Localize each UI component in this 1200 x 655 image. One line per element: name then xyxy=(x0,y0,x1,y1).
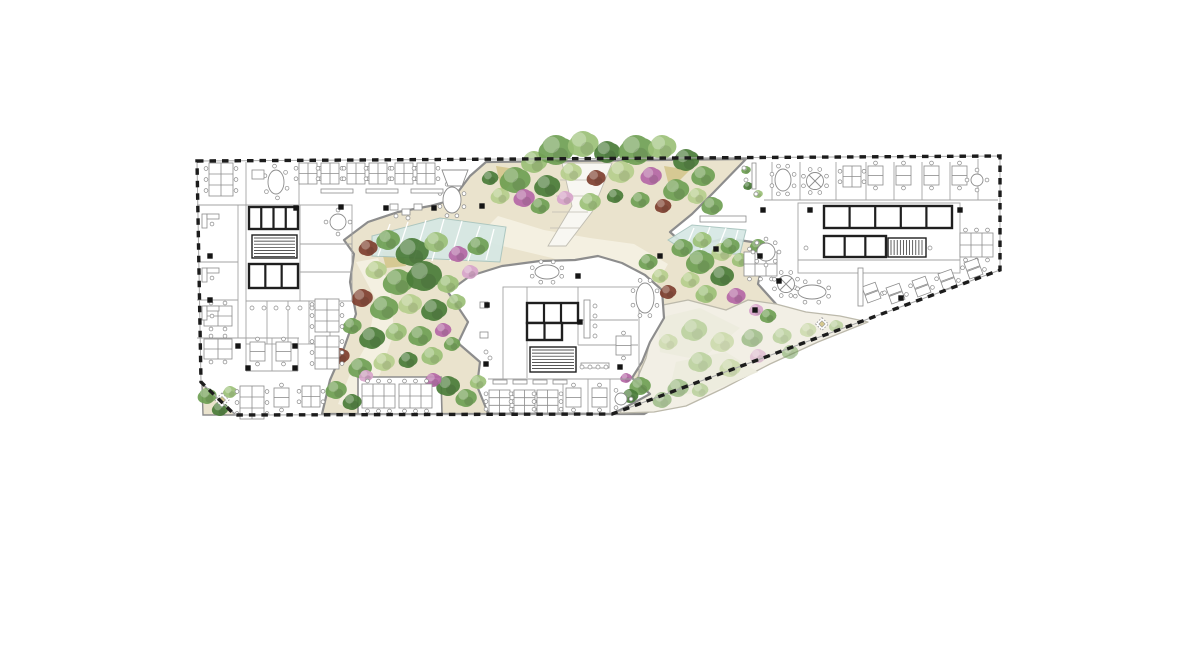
chair xyxy=(779,294,783,298)
chair xyxy=(751,250,755,254)
chair xyxy=(316,177,320,181)
chair xyxy=(985,178,989,182)
tree-shade xyxy=(698,260,710,272)
fixture-stool xyxy=(742,166,746,170)
tree-shade xyxy=(386,239,396,249)
chair xyxy=(551,260,555,264)
chair xyxy=(285,186,289,190)
chair xyxy=(777,250,781,254)
chair xyxy=(808,191,812,195)
tree xyxy=(568,131,599,157)
chair xyxy=(532,407,536,411)
chair xyxy=(509,400,513,404)
tree-shade xyxy=(569,171,578,180)
tree-shade xyxy=(334,389,343,398)
chair xyxy=(748,277,752,281)
chair xyxy=(234,178,238,182)
chair xyxy=(204,178,208,182)
chair xyxy=(975,188,979,192)
chair xyxy=(342,166,346,170)
stair-outline xyxy=(888,238,926,257)
fixture-stool xyxy=(298,306,302,310)
chair xyxy=(773,277,777,281)
structural-column xyxy=(657,253,662,258)
chair xyxy=(204,167,208,171)
desk-pair xyxy=(952,161,967,190)
chair xyxy=(282,362,286,366)
tree-shade xyxy=(698,361,708,371)
tree-shade xyxy=(720,275,730,285)
chair xyxy=(572,408,576,412)
chair xyxy=(377,409,381,413)
structural-column xyxy=(293,205,298,210)
structural-column xyxy=(577,319,582,324)
table-top xyxy=(443,187,461,213)
credenza xyxy=(493,380,507,384)
chair xyxy=(908,283,913,288)
desk-pair xyxy=(276,337,291,366)
tree-shade xyxy=(366,247,374,255)
structural-column xyxy=(235,343,240,348)
tree-shade xyxy=(666,341,674,349)
chair xyxy=(265,390,269,394)
structural-column xyxy=(760,207,765,212)
chair xyxy=(445,214,449,218)
chair xyxy=(874,186,878,190)
tree-shade xyxy=(394,331,403,340)
chair xyxy=(631,289,635,293)
structural-column xyxy=(807,207,812,212)
credenza xyxy=(533,380,547,384)
credenza xyxy=(513,380,527,384)
chair xyxy=(484,400,488,404)
tree-shade xyxy=(789,351,796,358)
desk-pair-angled xyxy=(933,268,961,292)
fixture-stool xyxy=(406,216,410,220)
fixture-stool xyxy=(394,214,398,218)
core-cell-block xyxy=(249,264,298,288)
tree-shade xyxy=(408,303,418,313)
desk-cluster-6 xyxy=(960,228,993,262)
core-cell-block xyxy=(824,236,886,257)
fixture-stool xyxy=(286,306,290,310)
chair xyxy=(786,164,790,168)
chair xyxy=(462,192,466,196)
structural-column xyxy=(207,297,212,302)
chair xyxy=(598,408,602,412)
chair xyxy=(986,258,990,262)
chair xyxy=(560,274,564,278)
chair xyxy=(964,228,968,232)
chair xyxy=(629,397,633,401)
structural-column xyxy=(245,365,250,370)
chair xyxy=(827,294,831,298)
chair xyxy=(559,392,563,396)
stair-outline xyxy=(252,235,297,258)
core-cell-block xyxy=(824,206,952,228)
structural-column xyxy=(575,273,580,278)
desk-cluster-4 xyxy=(297,386,325,407)
chair xyxy=(773,259,777,263)
fixture-stool xyxy=(588,365,592,369)
tree-shade xyxy=(350,325,358,333)
chair xyxy=(310,325,314,329)
tree-shade xyxy=(432,379,439,386)
chair xyxy=(210,222,214,226)
desk-pair xyxy=(868,161,883,190)
chair xyxy=(655,289,659,293)
chair xyxy=(336,232,340,236)
chair xyxy=(862,180,866,184)
tree-shade xyxy=(229,391,235,397)
desk-cluster-6 xyxy=(532,390,563,413)
tree-shade xyxy=(532,160,543,171)
tree-shade xyxy=(205,395,213,403)
table-top xyxy=(268,170,284,194)
structural-column xyxy=(383,205,388,210)
tree-shade xyxy=(538,205,546,213)
table-top xyxy=(535,265,559,279)
chair xyxy=(789,271,793,275)
tree-shade xyxy=(614,195,621,202)
tree-shade xyxy=(695,195,703,203)
desk-cluster-4 xyxy=(204,334,232,364)
structural-column xyxy=(292,365,297,370)
chair xyxy=(755,259,759,263)
chair xyxy=(655,303,659,307)
meeting-table-oval xyxy=(770,164,796,196)
tree-shade xyxy=(545,184,556,195)
tree-shade xyxy=(662,205,669,212)
chair xyxy=(390,166,394,170)
meeting-table-oval xyxy=(263,164,289,200)
tree-shade xyxy=(350,401,358,409)
fixture-stool xyxy=(604,365,608,369)
chair xyxy=(388,379,392,383)
fixture-stool xyxy=(593,314,597,318)
chair xyxy=(364,166,368,170)
chair xyxy=(223,360,227,364)
tree-shade xyxy=(660,145,672,157)
chair xyxy=(638,314,642,318)
tree-shade xyxy=(594,177,602,185)
chair xyxy=(755,241,759,245)
chair xyxy=(321,400,325,404)
meeting-table-round xyxy=(324,208,352,236)
chair xyxy=(648,314,652,318)
chair xyxy=(388,409,392,413)
tree-shade xyxy=(700,239,708,247)
desk-pair xyxy=(274,383,289,412)
tree xyxy=(648,135,676,159)
chair xyxy=(462,205,466,209)
desk-block xyxy=(202,214,207,228)
chair xyxy=(310,351,314,355)
chair xyxy=(340,314,344,318)
tree-shade xyxy=(451,343,458,350)
fixture-stool xyxy=(596,365,600,369)
desk-block xyxy=(202,306,207,320)
chair xyxy=(280,383,284,387)
fixture-stool xyxy=(754,192,758,196)
desk-cluster-6 xyxy=(399,379,432,413)
chair xyxy=(789,294,793,298)
structural-column xyxy=(957,207,962,212)
chair xyxy=(776,192,780,196)
chair xyxy=(748,247,752,251)
table-top xyxy=(330,214,346,230)
tree-shade xyxy=(625,377,630,382)
chair xyxy=(956,278,961,283)
chair xyxy=(436,166,440,170)
chair xyxy=(975,168,979,172)
tree-shade xyxy=(446,385,456,395)
chair xyxy=(614,388,618,392)
desk-cluster-6 xyxy=(310,299,344,332)
chair xyxy=(425,379,429,383)
credenza xyxy=(584,300,590,338)
chair xyxy=(934,276,939,281)
tree-shade xyxy=(406,359,414,367)
chair xyxy=(818,191,822,195)
chair xyxy=(455,214,459,218)
chair xyxy=(786,192,790,196)
chair xyxy=(276,196,280,200)
chair xyxy=(817,280,821,284)
chair xyxy=(414,379,418,383)
chair xyxy=(779,271,783,275)
chair xyxy=(284,170,288,174)
credenza xyxy=(553,380,567,384)
chair xyxy=(412,177,416,181)
desk-cluster-6 xyxy=(310,336,344,369)
fixture-stool xyxy=(744,178,748,182)
desk-block xyxy=(207,214,219,219)
chair xyxy=(412,166,416,170)
chair xyxy=(273,164,277,168)
chair xyxy=(622,331,626,335)
chair xyxy=(818,168,822,172)
tree-shade xyxy=(553,148,568,163)
chair xyxy=(377,379,381,383)
tree-shade xyxy=(747,185,751,189)
floor-plan-drawing xyxy=(0,0,1200,655)
chair xyxy=(817,300,821,304)
chair xyxy=(530,274,534,278)
chair xyxy=(321,389,325,393)
chair xyxy=(340,325,344,329)
fixture-stool xyxy=(928,246,932,250)
chair xyxy=(904,292,909,297)
chair xyxy=(838,169,842,173)
credenza xyxy=(752,163,756,189)
tree-shade xyxy=(522,197,531,206)
fixture-stool xyxy=(274,306,278,310)
fixture-stool xyxy=(593,334,597,338)
fixture-stool xyxy=(262,306,266,310)
chair xyxy=(256,337,260,341)
side-table xyxy=(390,204,398,210)
structural-column xyxy=(898,295,903,300)
fixture-stool xyxy=(593,324,597,328)
desk-pair-angled xyxy=(881,282,909,306)
tree-shade xyxy=(382,361,391,370)
chair xyxy=(560,266,564,270)
chair xyxy=(366,379,370,383)
chair xyxy=(484,392,488,396)
desk-cluster-6 xyxy=(362,379,395,413)
chair xyxy=(559,407,563,411)
chair xyxy=(874,161,878,165)
tree-shade xyxy=(638,385,647,394)
tree-shade xyxy=(430,355,439,364)
chair xyxy=(803,300,807,304)
fixture-stool xyxy=(250,306,254,310)
core-cell-block xyxy=(527,303,578,323)
tree-shade xyxy=(720,341,730,351)
tree-shade xyxy=(469,271,476,278)
chair xyxy=(366,409,370,413)
chair xyxy=(256,362,260,366)
table-top xyxy=(636,283,654,313)
side-table xyxy=(414,204,422,210)
tree-shade xyxy=(580,142,593,155)
chair xyxy=(282,337,286,341)
tree-shade xyxy=(734,295,742,303)
table-top xyxy=(775,169,791,191)
tree-shade xyxy=(370,336,381,347)
office-desk-l xyxy=(202,268,219,282)
chair xyxy=(598,383,602,387)
chair xyxy=(559,400,563,404)
tree-shade xyxy=(633,148,648,163)
chair xyxy=(862,169,866,173)
chair xyxy=(793,294,797,298)
structural-column xyxy=(338,204,343,209)
chair xyxy=(964,258,968,262)
tree-shade xyxy=(489,177,496,184)
chair xyxy=(803,280,807,284)
fixture-stool xyxy=(484,350,488,354)
tree-shade xyxy=(646,261,654,269)
desk-cluster-4 xyxy=(204,301,232,331)
chair xyxy=(209,334,213,338)
chair xyxy=(297,389,301,393)
chair xyxy=(204,189,208,193)
chair xyxy=(403,409,407,413)
chair xyxy=(960,265,965,270)
chair xyxy=(773,287,777,291)
fixture-stool xyxy=(310,306,314,310)
chair xyxy=(802,184,806,188)
tree-shade xyxy=(780,335,788,343)
meeting-table-cross xyxy=(802,168,829,195)
tree-shade xyxy=(688,279,696,287)
tree-shade xyxy=(767,315,774,322)
chair xyxy=(539,260,543,264)
chair xyxy=(827,286,831,290)
desk-cluster-4 xyxy=(838,166,866,187)
chair xyxy=(297,400,301,404)
desk-pair xyxy=(250,337,265,366)
chair xyxy=(310,340,314,344)
meeting-table-oval xyxy=(793,280,830,304)
chair xyxy=(209,360,213,364)
chair xyxy=(310,362,314,366)
structural-column xyxy=(617,364,622,369)
chair xyxy=(802,174,806,178)
tree-shade xyxy=(704,293,713,302)
chair xyxy=(348,220,352,224)
tree-shade xyxy=(728,245,736,253)
chair xyxy=(340,351,344,355)
tree-shade xyxy=(395,280,408,293)
chair xyxy=(210,276,214,280)
chair xyxy=(551,280,555,284)
chair xyxy=(425,409,429,413)
chair xyxy=(770,172,774,176)
tree-shade xyxy=(421,274,436,289)
tree xyxy=(743,182,752,190)
chair xyxy=(342,177,346,181)
tree-shade xyxy=(619,170,630,181)
tree-shade xyxy=(219,408,226,415)
chair xyxy=(773,241,777,245)
tree-shade xyxy=(699,389,706,396)
tree-shade xyxy=(684,158,695,169)
chair xyxy=(340,340,344,344)
chair xyxy=(235,401,239,405)
chair xyxy=(223,334,227,338)
tree-shade xyxy=(660,399,668,407)
tree-shade xyxy=(382,306,394,318)
tree-shade xyxy=(680,247,689,256)
chair xyxy=(234,189,238,193)
desk-block xyxy=(207,268,219,273)
chair xyxy=(770,184,774,188)
chair xyxy=(986,228,990,232)
desk-block xyxy=(202,268,207,282)
chair xyxy=(234,167,238,171)
desk-pair xyxy=(924,161,939,190)
tree-shade xyxy=(807,329,814,336)
tree-shade xyxy=(498,195,506,203)
chair xyxy=(223,301,227,305)
chair xyxy=(265,190,269,194)
structural-column xyxy=(757,253,762,258)
side-table xyxy=(252,170,264,179)
tree-shade xyxy=(710,205,719,214)
tree-shade xyxy=(638,199,646,207)
chair xyxy=(209,327,213,331)
side-table xyxy=(402,209,410,215)
floor-plan-figure xyxy=(0,0,1200,655)
chair xyxy=(777,164,781,168)
structural-column xyxy=(431,205,436,210)
tree-shade xyxy=(564,197,571,204)
chair xyxy=(509,392,513,396)
table-top xyxy=(615,393,627,405)
tree-shade xyxy=(692,328,703,339)
structural-column xyxy=(752,307,757,312)
credenza xyxy=(858,268,863,306)
tree-shade xyxy=(745,169,749,173)
chair xyxy=(958,161,962,165)
chair xyxy=(310,314,314,318)
credenza xyxy=(411,189,443,193)
chair xyxy=(759,277,763,281)
structural-column xyxy=(713,246,718,251)
